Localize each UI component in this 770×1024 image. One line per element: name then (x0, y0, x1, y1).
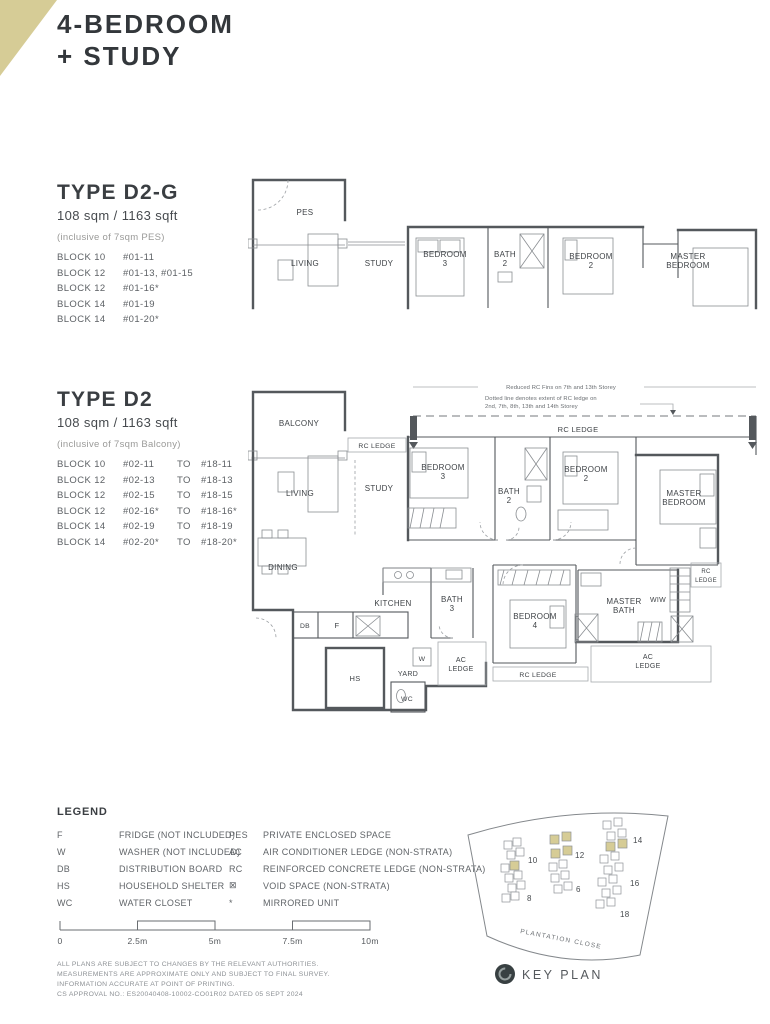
room-label-study: STUDY (365, 484, 394, 493)
keyplan-cluster-right (596, 818, 627, 908)
to-word: TO (177, 459, 201, 470)
page-title-line1: 4-BEDROOM (57, 8, 234, 40)
unit-row: BLOCK 10#01-11 (57, 250, 257, 266)
block-label: BLOCK 12 (57, 475, 123, 486)
unit-row: BLOCK 14#02-19TO#18-19 (57, 519, 257, 535)
to-word: TO (177, 506, 201, 517)
keyplan-block-12: 12 (575, 851, 585, 860)
unit-to: #18-13 (201, 475, 233, 486)
unit-label: #01-13, #01-15 (123, 268, 193, 279)
block-label: BLOCK 14 (57, 537, 123, 548)
block-label: BLOCK 12 (57, 283, 123, 294)
room-label-living: LIVING (291, 259, 319, 268)
unit-row: BLOCK 10#02-11TO#18-11 (57, 457, 257, 473)
legend-desc: WATER CLOSET (119, 898, 193, 908)
type-d2g-info: TYPE D2-G 108 sqm / 1163 sqft (inclusive… (57, 181, 257, 328)
room-label-bedroom3: BEDROOM3 (421, 463, 464, 481)
keyplan-block-18: 18 (620, 910, 630, 919)
legend-row: RCREINFORCED CONCRETE LEDGE (NON-STRATA) (229, 860, 486, 877)
legend-row: DBDISTRIBUTION BOARD (57, 860, 229, 877)
type-d2g-area: 108 sqm / 1163 sqft (57, 208, 257, 223)
unit-row: BLOCK 12#02-13TO#18-13 (57, 473, 257, 489)
unit-label: #01-19 (123, 299, 155, 310)
unit-to: #18-20* (201, 537, 237, 548)
legend-desc: HOUSEHOLD SHELTER (119, 881, 224, 891)
legend-row: WCWATER CLOSET (57, 894, 229, 911)
unit-row: BLOCK 12#01-13, #01-15 (57, 266, 257, 282)
corner-accent-triangle (0, 0, 57, 76)
unit-to: #18-15 (201, 490, 233, 501)
label-rc-ledge-balcony: RC LEDGE (358, 443, 395, 450)
label-hs: HS (349, 674, 360, 683)
legend-row: WWASHER (NOT INCLUDED) (57, 843, 229, 860)
to-word: TO (177, 537, 201, 548)
room-label-study: STUDY (365, 259, 394, 268)
unit-from: #02-20* (123, 537, 177, 548)
legend-column-1: FFRIDGE (NOT INCLUDED) WWASHER (NOT INCL… (57, 826, 229, 911)
legend: LEGEND FFRIDGE (NOT INCLUDED) WWASHER (N… (57, 806, 477, 911)
annotation-rc-fins: Reduced RC Fins on 7th and 13th Storey (506, 385, 616, 391)
keyplan-cluster-middle (549, 832, 572, 893)
disclaimer-text: ALL PLANS ARE SUBJECT TO CHANGES BY THE … (57, 960, 330, 1000)
unit-from: #02-16* (123, 506, 177, 517)
room-label-bath2: BATH2 (494, 250, 516, 268)
type-d2-name: TYPE D2 (57, 388, 257, 412)
keyplan-block-8: 8 (527, 894, 532, 903)
label-rc-ledge-bottom: RC LEDGE (519, 672, 556, 679)
legend-abbr: F (57, 830, 119, 840)
keyplan-block-6: 6 (576, 885, 581, 894)
legend-desc: DISTRIBUTION BOARD (119, 864, 222, 874)
block-label: BLOCK 12 (57, 268, 123, 279)
legend-desc: VOID SPACE (NON-STRATA) (263, 881, 390, 891)
annotation-dotted-line-2: 2nd, 7th, 8th, 13th and 14th Storey (485, 404, 578, 410)
room-label-wiw: WIW (650, 597, 666, 604)
unit-label: #01-16* (123, 283, 159, 294)
disclaimer-line: MEASUREMENTS ARE APPROXIMATE ONLY AND SU… (57, 970, 330, 980)
scale-tick-0: 0 (57, 936, 62, 946)
disclaimer-line: CS APPROVAL NO.: ES20040408-10002-CO01R0… (57, 990, 330, 1000)
keyplan-block-16: 16 (630, 879, 640, 888)
room-label-pes: PES (297, 208, 314, 217)
label-ac-ledge-right: ACLEDGE (635, 654, 660, 670)
room-label-bedroom2: BEDROOM2 (569, 252, 612, 270)
unit-to: #18-16* (201, 506, 237, 517)
unit-row: BLOCK 14#02-20*TO#18-20* (57, 535, 257, 551)
legend-abbr: PES (229, 830, 263, 840)
keyplan-block-14: 14 (633, 836, 643, 845)
legend-desc: AIR CONDITIONER LEDGE (NON-STRATA) (263, 847, 452, 857)
unit-to: #18-19 (201, 521, 233, 532)
legend-column-2: PESPRIVATE ENCLOSED SPACE ACAIR CONDITIO… (229, 826, 486, 911)
unit-label: #01-11 (123, 252, 154, 263)
legend-desc: MIRRORED UNIT (263, 898, 339, 908)
label-w: W (419, 656, 426, 663)
unit-row: BLOCK 12#02-16*TO#18-16* (57, 504, 257, 520)
legend-row: ACAIR CONDITIONER LEDGE (NON-STRATA) (229, 843, 486, 860)
type-d2g-name: TYPE D2-G (57, 181, 257, 205)
legend-row: ⊠VOID SPACE (NON-STRATA) (229, 877, 486, 894)
room-label-master-bath: MASTERBATH (606, 597, 641, 615)
label-db: DB (300, 623, 310, 630)
block-label: BLOCK 12 (57, 506, 123, 517)
scale-tick-4: 10m (361, 936, 378, 946)
legend-desc: PRIVATE ENCLOSED SPACE (263, 830, 391, 840)
page-title-line2: + STUDY (57, 40, 234, 72)
annotation-dotted-line-1: Dotted line denotes extent of RC ledge o… (485, 396, 597, 402)
label-f: F (335, 621, 340, 630)
room-label-balcony: BALCONY (279, 419, 320, 428)
room-label-dining: DINING (268, 563, 298, 572)
label-rc-ledge-right: RCLEDGE (695, 569, 717, 584)
unit-label: #01-20* (123, 314, 159, 325)
type-d2-note: (inclusive of 7sqm Balcony) (57, 439, 257, 450)
unit-row: BLOCK 14#01-19 (57, 297, 257, 313)
room-label-bedroom3: BEDROOM3 (423, 250, 466, 268)
room-label-bedroom2: BEDROOM2 (564, 465, 607, 483)
scale-tick-2: 5m (209, 936, 221, 946)
block-label: BLOCK 14 (57, 521, 123, 532)
floorplan-type-d2: Reduced RC Fins on 7th and 13th Storey D… (248, 380, 766, 730)
room-label-bath3: BATH3 (441, 595, 463, 613)
label-rc-ledge-top: RC LEDGE (558, 425, 599, 434)
type-d2-info: TYPE D2 108 sqm / 1163 sqft (inclusive o… (57, 388, 257, 550)
void-space-icon: ⊠ (229, 880, 263, 891)
label-yard: YARD (398, 671, 418, 678)
legend-row: FFRIDGE (NOT INCLUDED) (57, 826, 229, 843)
key-plan: 10 8 12 6 14 16 18 PLANTATION CLOSE KEY … (450, 793, 750, 1003)
room-label-master-bedroom: MASTERBEDROOM (662, 489, 705, 507)
block-label: BLOCK 10 (57, 252, 123, 263)
type-d2-area: 108 sqm / 1163 sqft (57, 415, 257, 430)
legend-title: LEGEND (57, 806, 477, 818)
unit-row: BLOCK 14#01-20* (57, 312, 257, 328)
label-wc: WC (401, 696, 413, 703)
legend-abbr: AC (229, 847, 263, 857)
type-d2g-note: (inclusive of 7sqm PES) (57, 232, 257, 243)
floorplan-type-d2g: PES LIVING STUDY BEDROOM3 BATH2 BEDROOM2… (248, 168, 766, 310)
unit-row: BLOCK 12#02-15TO#18-15 (57, 488, 257, 504)
type-d2-unit-list: BLOCK 10#02-11TO#18-11 BLOCK 12#02-13TO#… (57, 457, 257, 550)
scale-tick-1: 2.5m (127, 936, 147, 946)
block-label: BLOCK 10 (57, 459, 123, 470)
legend-abbr: * (229, 898, 263, 908)
legend-abbr: RC (229, 864, 263, 874)
legend-row: *MIRRORED UNIT (229, 894, 486, 911)
legend-abbr: HS (57, 881, 119, 891)
keyplan-cluster-left (501, 838, 525, 902)
legend-abbr: DB (57, 864, 119, 874)
keyplan-block-10: 10 (528, 856, 538, 865)
scale-bar: 0 2.5m 5m 7.5m 10m (55, 916, 385, 950)
unit-from: #02-15 (123, 490, 177, 501)
legend-abbr: WC (57, 898, 119, 908)
legend-desc: WASHER (NOT INCLUDED) (119, 847, 240, 857)
disclaimer-line: INFORMATION ACCURATE AT POINT OF PRINTIN… (57, 980, 330, 990)
unit-from: #02-11 (123, 459, 177, 470)
room-label-bath2: BATH2 (498, 487, 520, 505)
block-label: BLOCK 12 (57, 490, 123, 501)
label-ac-ledge-mid: ACLEDGE (448, 657, 473, 673)
to-word: TO (177, 475, 201, 486)
legend-abbr: W (57, 847, 119, 857)
keyplan-caption: KEY PLAN (522, 968, 603, 982)
page-title: 4-BEDROOM + STUDY (57, 8, 234, 72)
unit-row: BLOCK 12#01-16* (57, 281, 257, 297)
block-label: BLOCK 14 (57, 314, 123, 325)
to-word: TO (177, 521, 201, 532)
to-word: TO (177, 490, 201, 501)
block-label: BLOCK 14 (57, 299, 123, 310)
room-label-master-bedroom: MASTERBEDROOM (666, 252, 709, 270)
disclaimer-line: ALL PLANS ARE SUBJECT TO CHANGES BY THE … (57, 960, 330, 970)
legend-row: PESPRIVATE ENCLOSED SPACE (229, 826, 486, 843)
legend-desc: FRIDGE (NOT INCLUDED) (119, 830, 235, 840)
unit-from: #02-19 (123, 521, 177, 532)
unit-to: #18-11 (201, 459, 232, 470)
room-label-kitchen: KITCHEN (374, 599, 411, 608)
unit-from: #02-13 (123, 475, 177, 486)
type-d2g-unit-list: BLOCK 10#01-11 BLOCK 12#01-13, #01-15 BL… (57, 250, 257, 328)
legend-row: HSHOUSEHOLD SHELTER (57, 877, 229, 894)
keyplan-street-name: PLANTATION CLOSE (520, 928, 603, 951)
scale-tick-3: 7.5m (282, 936, 302, 946)
keyplan-logo (495, 964, 515, 984)
room-label-living: LIVING (286, 489, 314, 498)
